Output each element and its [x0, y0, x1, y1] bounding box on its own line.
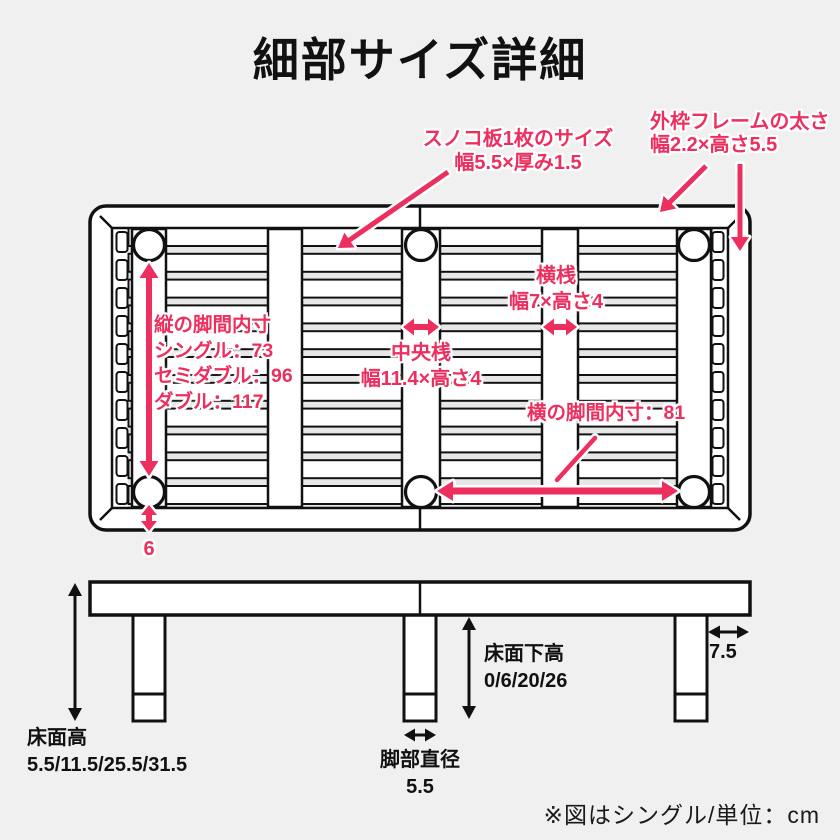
under-floor-height-line1: 床面下高 [484, 641, 567, 668]
outer-frame-label: 外枠フレームの太さ 幅2.2×高さ5.5 [650, 111, 829, 157]
vertical-leg-span-single: シングル：73 [154, 339, 293, 365]
leg-edge-offset-label: 6 [138, 537, 160, 562]
floor-height-line2: 5.5/11.5/25.5/31.5 [27, 752, 187, 779]
page-title: 細部サイズ詳細 [0, 24, 840, 90]
side-offset-label: 7.5 [709, 639, 737, 666]
product-dimension-sheet: { "title": "細部サイズ詳細", "unit_note": "※図はシ… [0, 0, 840, 840]
floor-height-label: 床面高 5.5/11.5/25.5/31.5 [27, 725, 187, 778]
floor-height-line1: 床面高 [27, 725, 187, 752]
vertical-leg-span-semidouble: セミダブル：96 [154, 364, 293, 390]
under-floor-height-line2: 0/6/20/26 [484, 668, 567, 695]
cross-rail-label: 横桟 幅7×高さ4 [466, 263, 646, 315]
under-floor-height-label: 床面下高 0/6/20/26 [484, 641, 567, 695]
outer-frame-line1: 外枠フレームの太さ [650, 111, 829, 134]
center-rail-line2: 幅11.4×高さ4 [331, 366, 511, 392]
cross-rail-line1: 横桟 [466, 263, 646, 289]
vertical-leg-span-label: 縦の脚間内寸 シングル：73 セミダブル：96 ダブル：117 [154, 313, 293, 415]
side-view-diagram [90, 582, 750, 721]
center-rail-label: 中央桟 幅11.4×高さ4 [331, 340, 511, 392]
outer-frame-line2: 幅2.2×高さ5.5 [650, 134, 829, 157]
leg-diameter-label: 脚部直径 5.5 [340, 747, 500, 801]
leg-diameter-line2: 5.5 [340, 774, 500, 801]
vertical-leg-span-title: 縦の脚間内寸 [154, 313, 293, 339]
legs-side-view [133, 615, 707, 721]
cross-rail-line2: 幅7×高さ4 [466, 289, 646, 315]
horizontal-leg-span-label: 横の脚間内寸：81 [527, 401, 685, 426]
center-rail-line1: 中央桟 [331, 340, 511, 366]
slat-size-line1: スノコ板1枚のサイズ [398, 127, 638, 151]
unit-note: ※図はシングル/単位：cm [544, 796, 820, 830]
slat-size-line2: 幅5.5×厚み1.5 [398, 151, 638, 175]
slat-size-label: スノコ板1枚のサイズ 幅5.5×厚み1.5 [398, 127, 638, 175]
leg-diameter-line1: 脚部直径 [340, 747, 500, 774]
vertical-leg-span-double: ダブル：117 [154, 390, 293, 416]
